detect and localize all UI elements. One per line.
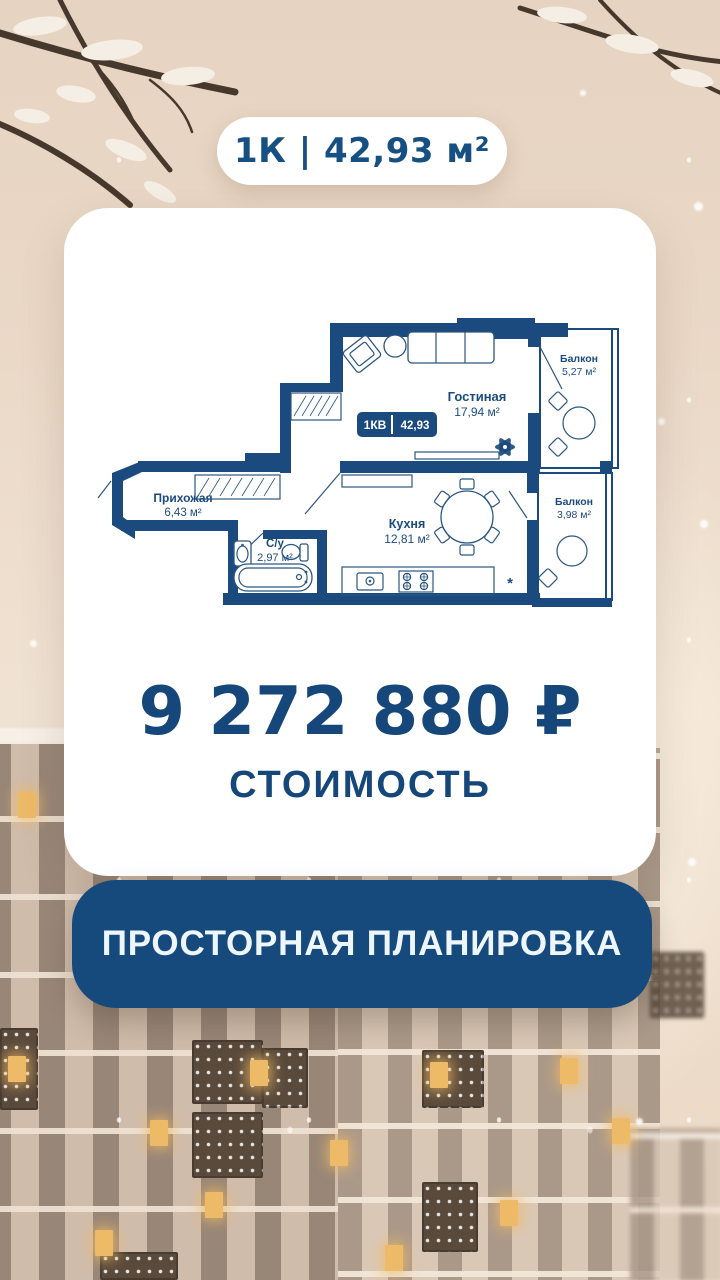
snowflake: [688, 858, 696, 866]
room-label-kitchen: Кухня: [389, 517, 426, 531]
snowflake: [636, 1118, 643, 1125]
price-label: СТОИМОСТЬ: [64, 764, 656, 807]
room-label-living: Гостиная: [448, 389, 507, 404]
lit-window: [430, 1062, 448, 1088]
price-value: 9 272 880 ₽: [64, 678, 656, 745]
layout-button[interactable]: ПРОСТОРНАЯ ПЛАНИРОВКА: [72, 880, 652, 1008]
plant-icon: [495, 437, 515, 458]
layout-button-label: ПРОСТОРНАЯ ПЛАНИРОВКА: [102, 924, 622, 964]
lit-window: [250, 1060, 268, 1086]
plan-wardrobes: [195, 393, 341, 499]
plan-unit-badge-right: 42,93: [401, 420, 430, 432]
snowflake: [580, 90, 586, 96]
area-badge-text: 1К | 42,93 м²: [234, 131, 490, 171]
room-label-balcony-bottom: Балкон: [555, 496, 593, 508]
balcony-block: [192, 1112, 263, 1178]
plan-balcony-top: Балкон 5,27 м²: [548, 353, 598, 457]
room-area-bathroom: 2,97 м²: [257, 552, 293, 564]
balcony-block: [100, 1252, 178, 1280]
lit-window: [560, 1058, 578, 1084]
ac-symbol: *: [507, 575, 513, 592]
room-label-hallway: Прихожая: [153, 491, 212, 505]
floor-plan: 1КВ 42,93 Балкон 5,27 м²: [95, 315, 625, 607]
balcony-block: [650, 952, 704, 1018]
balcony-block: [422, 1182, 478, 1252]
balcony-block: [262, 1048, 308, 1108]
room-area-kitchen: 12,81 м²: [384, 532, 430, 546]
room-area-balcony-top: 5,27 м²: [562, 366, 597, 378]
promo-poster: 1К | 42,93 м²: [0, 0, 720, 1280]
plan-kitchen: * Кухня 12,81 м²: [342, 479, 513, 595]
plan-unit-badge-left: 1КВ: [364, 418, 387, 432]
building-right-facade: [630, 1128, 720, 1280]
lit-window: [205, 1192, 223, 1218]
lit-window: [612, 1118, 630, 1144]
offer-card: 1КВ 42,93 Балкон 5,27 м²: [64, 208, 656, 876]
area-badge: 1К | 42,93 м²: [217, 117, 507, 185]
lit-window: [95, 1230, 113, 1256]
lit-window: [330, 1140, 348, 1166]
plan-unit-badge: 1КВ 42,93: [357, 412, 437, 437]
room-area-hallway: 6,43 м²: [164, 507, 201, 519]
building-right-far: [630, 1128, 720, 1280]
room-area-balcony-bottom: 3,98 м²: [557, 509, 592, 521]
snowflake: [658, 418, 665, 425]
plan-balcony-bottom: Балкон 3,98 м²: [538, 496, 593, 588]
snowflake: [694, 202, 703, 211]
lit-window: [150, 1120, 168, 1146]
room-area-living: 17,94 м²: [454, 405, 500, 419]
lit-window: [18, 792, 36, 818]
lit-window: [8, 1056, 26, 1082]
snowflake: [30, 640, 37, 647]
snowflake: [700, 520, 708, 528]
plan-bathroom: С/у 2,97 м²: [234, 538, 312, 591]
room-label-balcony-top: Балкон: [560, 353, 598, 365]
room-label-bathroom: С/у: [266, 538, 285, 550]
lit-window: [500, 1200, 518, 1226]
lit-window: [385, 1245, 403, 1271]
